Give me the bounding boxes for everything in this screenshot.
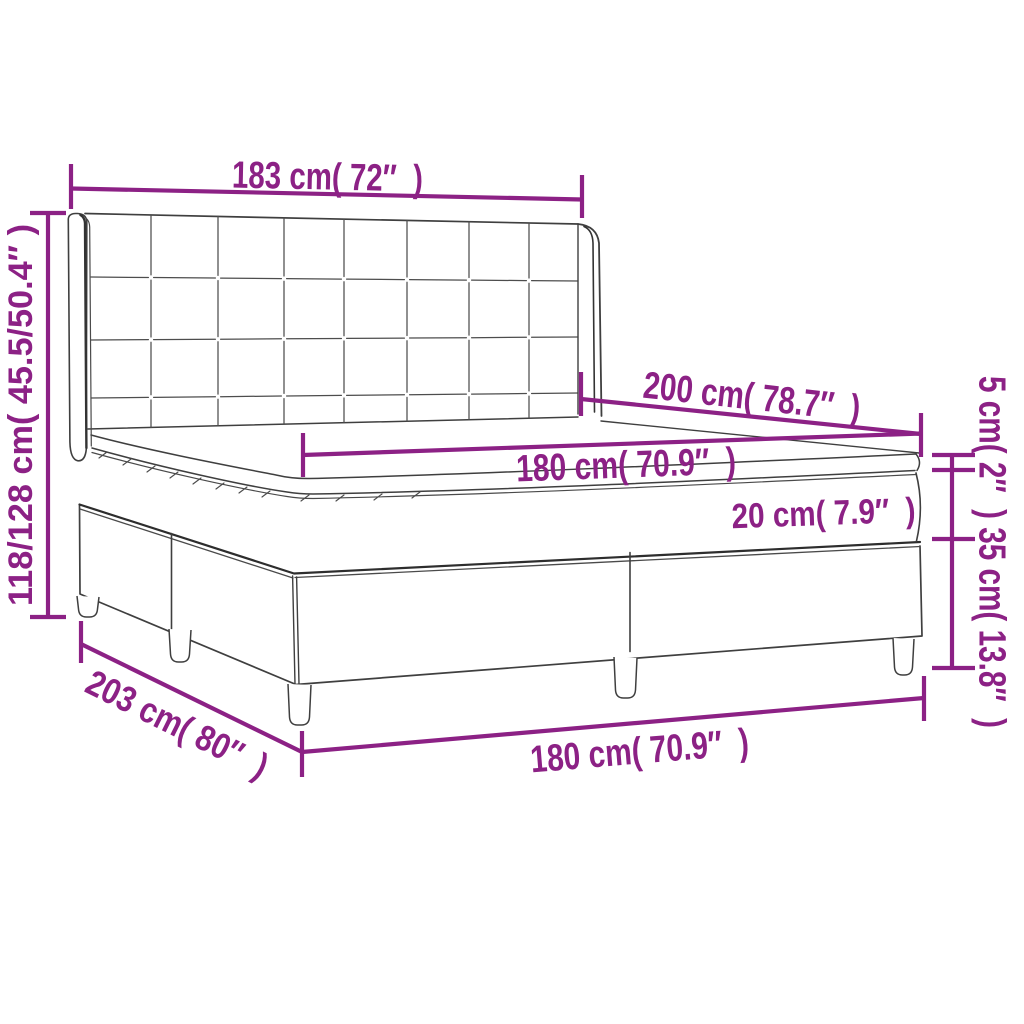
svg-text:5 cm( 2″ ) 35 cm( 13.8″ ): 5 cm( 2″ ) 35 cm( 13.8″ ) [971, 376, 1013, 728]
svg-text:118/128 cm( 45.5/50.4″ ): 118/128 cm( 45.5/50.4″ ) [2, 224, 40, 606]
svg-text:180 cm( 70.9″ ): 180 cm( 70.9″ ) [515, 440, 736, 490]
svg-text:20 cm( 7.9″ ): 20 cm( 7.9″ ) [731, 491, 916, 536]
svg-text:183 cm( 72″ ): 183 cm( 72″ ) [232, 155, 424, 201]
